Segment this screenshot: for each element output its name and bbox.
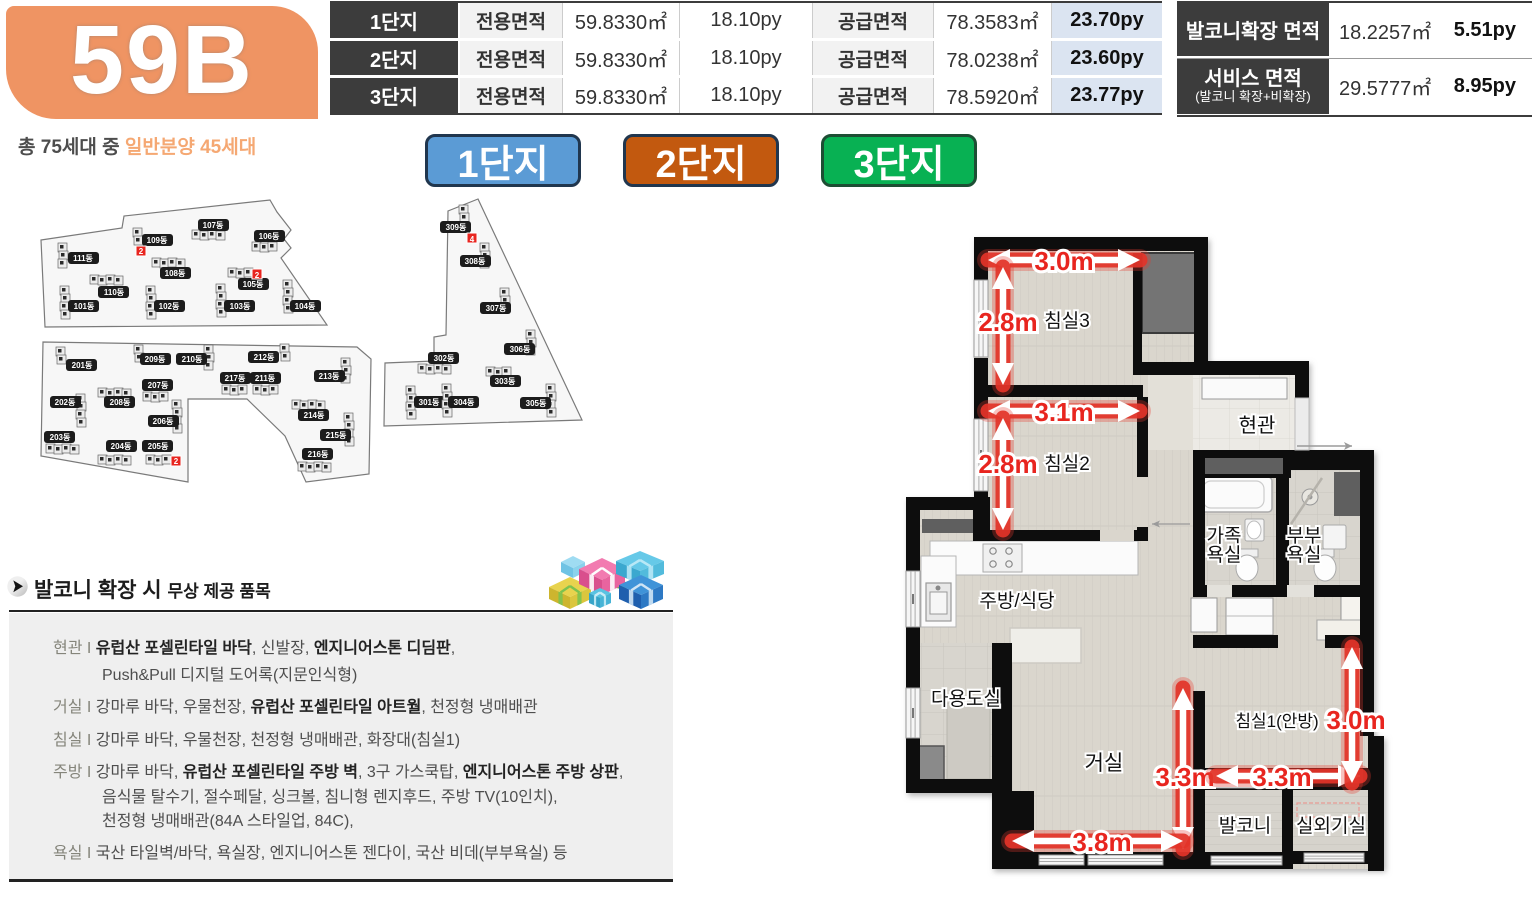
svg-text:304동: 304동 [454, 398, 475, 407]
svg-text:217동: 217동 [225, 374, 246, 383]
svg-text:2: 2 [255, 271, 260, 280]
svg-text:309동: 309동 [446, 223, 467, 232]
svg-text:101동: 101동 [74, 302, 95, 311]
svg-text:215동: 215동 [326, 431, 347, 440]
svg-text:욕실: 욕실 [1287, 544, 1322, 566]
svg-text:침실1(안방): 침실1(안방) [1235, 712, 1318, 731]
svg-text:203동: 203동 [50, 433, 71, 442]
svg-text:가족: 가족 [1207, 525, 1242, 547]
svg-text:205동: 205동 [148, 442, 169, 451]
svg-text:3.3m: 3.3m [1252, 762, 1311, 792]
svg-text:214동: 214동 [304, 411, 325, 420]
svg-text:106동: 106동 [259, 232, 280, 241]
svg-text:109동: 109동 [147, 236, 168, 245]
svg-text:207동: 207동 [148, 381, 169, 390]
svg-text:3.0m: 3.0m [1034, 246, 1093, 276]
svg-text:208동: 208동 [110, 398, 131, 407]
svg-text:다용도실: 다용도실 [931, 688, 1001, 710]
svg-text:201동: 201동 [72, 361, 93, 370]
svg-text:102동: 102동 [159, 302, 180, 311]
svg-text:301동: 301동 [419, 398, 440, 407]
svg-text:209동: 209동 [145, 355, 166, 364]
svg-text:307동: 307동 [486, 304, 507, 313]
svg-text:204동: 204동 [111, 442, 132, 451]
svg-text:103동: 103동 [230, 302, 251, 311]
svg-text:2: 2 [139, 247, 144, 256]
svg-text:211동: 211동 [255, 374, 276, 383]
svg-text:302동: 302동 [434, 354, 455, 363]
svg-text:주방/식당: 주방/식당 [979, 590, 1054, 612]
svg-text:현관: 현관 [1239, 414, 1276, 437]
svg-text:107동: 107동 [203, 221, 224, 230]
svg-text:206동: 206동 [153, 417, 174, 426]
svg-text:105동: 105동 [243, 280, 264, 289]
svg-text:실외기실: 실외기실 [1296, 815, 1366, 837]
svg-text:202동: 202동 [55, 398, 76, 407]
svg-text:2.8m: 2.8m [978, 449, 1037, 479]
svg-text:욕실: 욕실 [1207, 544, 1242, 566]
svg-text:305동: 305동 [526, 399, 547, 408]
svg-text:2: 2 [174, 457, 179, 466]
svg-text:3.8m: 3.8m [1072, 827, 1131, 857]
svg-text:111동: 111동 [73, 254, 93, 263]
svg-text:3.0m: 3.0m [1326, 705, 1385, 735]
svg-text:4: 4 [470, 235, 475, 244]
svg-text:303동: 303동 [495, 377, 516, 386]
svg-text:발코니: 발코니 [1219, 815, 1271, 837]
svg-text:110동: 110동 [104, 288, 125, 297]
svg-text:212동: 212동 [254, 353, 275, 362]
svg-text:216동: 216동 [308, 450, 329, 459]
svg-text:213동: 213동 [319, 372, 340, 381]
svg-text:2.8m: 2.8m [978, 307, 1037, 337]
svg-text:부부: 부부 [1287, 526, 1322, 547]
svg-text:침실2: 침실2 [1044, 453, 1090, 475]
svg-text:104동: 104동 [295, 302, 316, 311]
svg-text:3.1m: 3.1m [1034, 397, 1093, 427]
svg-text:308동: 308동 [465, 257, 486, 266]
svg-text:침실3: 침실3 [1044, 310, 1090, 332]
svg-text:108동: 108동 [165, 269, 186, 278]
svg-text:거실: 거실 [1085, 752, 1124, 775]
svg-text:210동: 210동 [182, 355, 203, 364]
svg-text:306동: 306동 [510, 345, 531, 354]
